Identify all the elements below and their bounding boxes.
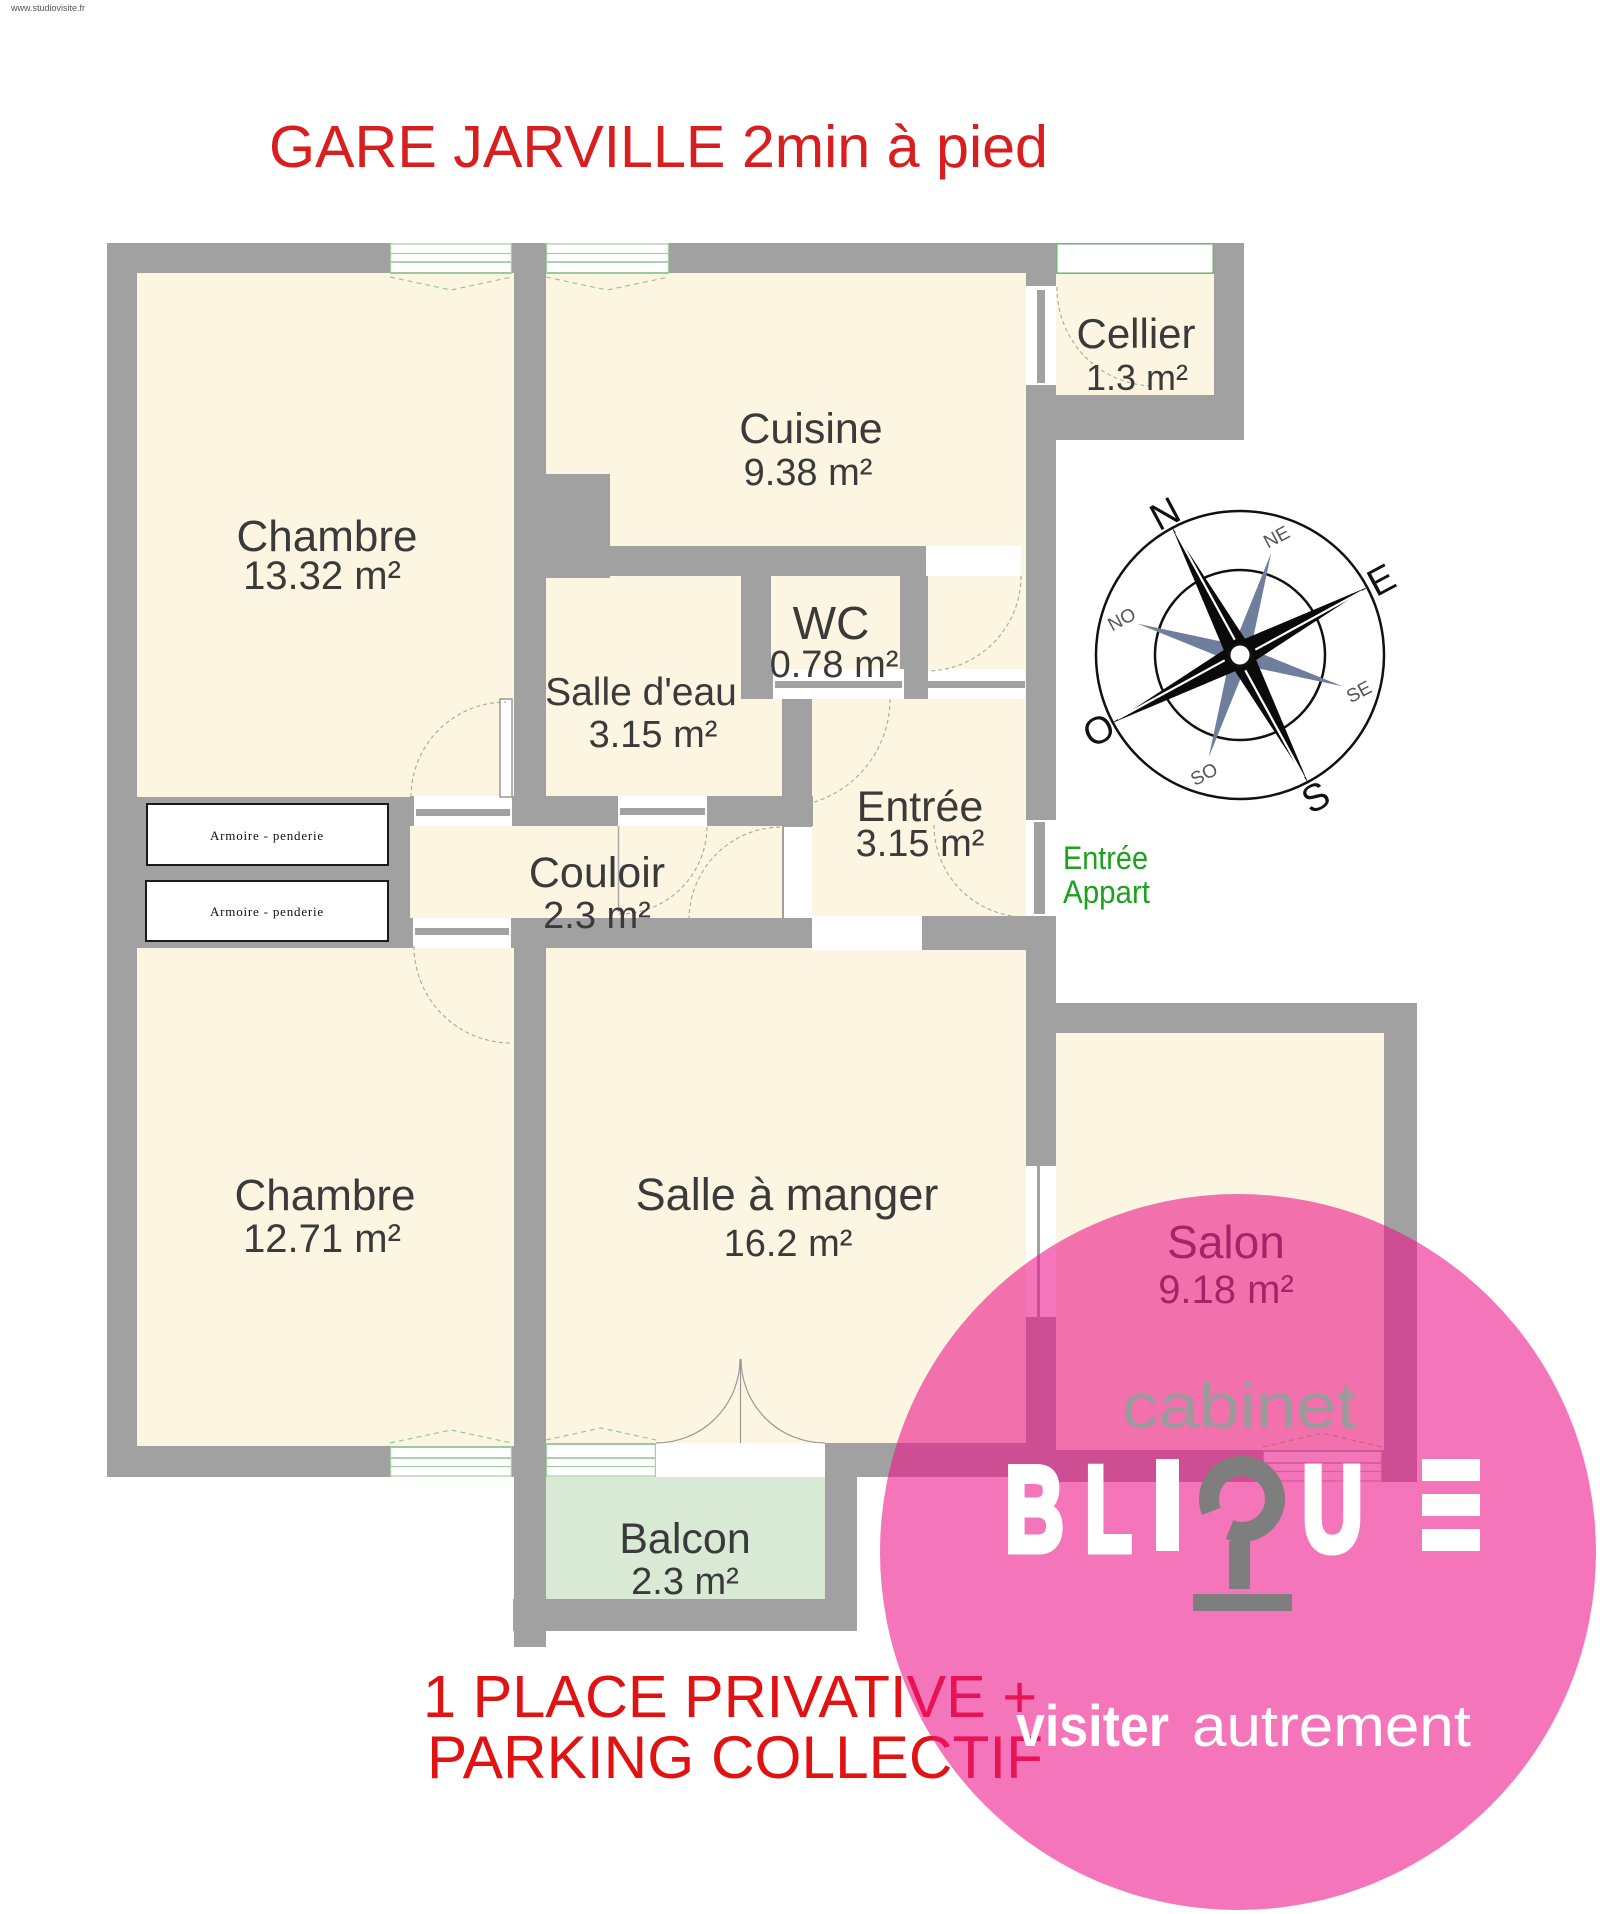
svg-text:autrement: autrement [1192, 1694, 1471, 1759]
svg-text:NO: NO [1105, 604, 1140, 636]
svg-text:GARE JARVILLE 2min à pied: GARE JARVILLE 2min à pied [269, 114, 1048, 180]
svg-text:U: U [1302, 1441, 1363, 1577]
svg-text:Appart: Appart [1063, 874, 1150, 910]
svg-text:SE: SE [1343, 677, 1375, 707]
svg-text:2.3 m²: 2.3 m² [631, 1561, 739, 1603]
svg-text:Balcon: Balcon [619, 1515, 750, 1563]
svg-text:B: B [1005, 1441, 1064, 1577]
svg-text:Entrée: Entrée [1063, 840, 1148, 876]
svg-text:E: E [1361, 556, 1403, 605]
svg-text:Armoire - penderie: Armoire - penderie [210, 828, 324, 843]
svg-text:Armoire - penderie: Armoire - penderie [210, 904, 324, 919]
svg-text:O: O [1076, 706, 1122, 757]
svg-text:WC: WC [793, 597, 870, 649]
svg-text:www.studiovisite.fr: www.studiovisite.fr [10, 3, 85, 13]
svg-text:3.15 m²: 3.15 m² [856, 823, 985, 865]
svg-text:3.15 m²: 3.15 m² [589, 714, 718, 756]
svg-text:S: S [1295, 774, 1337, 823]
svg-text:13.32 m²: 13.32 m² [243, 554, 401, 598]
svg-text:12.71 m²: 12.71 m² [243, 1217, 401, 1261]
svg-text:SO: SO [1187, 759, 1221, 790]
svg-text:Cellier: Cellier [1076, 310, 1195, 357]
svg-text:Salle à manger: Salle à manger [636, 1169, 939, 1220]
svg-text:NE: NE [1260, 522, 1293, 553]
svg-text:Chambre: Chambre [235, 1171, 416, 1220]
svg-text:Salle d'eau: Salle d'eau [545, 671, 737, 714]
svg-text:cabinet: cabinet [1122, 1370, 1357, 1442]
svg-text:9.38 m²: 9.38 m² [744, 452, 873, 494]
svg-text:L: L [1085, 1441, 1132, 1577]
svg-text:Couloir: Couloir [529, 849, 665, 897]
svg-text:visiter: visiter [1016, 1694, 1169, 1759]
svg-text:N: N [1143, 490, 1187, 540]
svg-text:1.3 m²: 1.3 m² [1086, 357, 1188, 398]
svg-text:2.3 m²: 2.3 m² [543, 895, 651, 937]
svg-text:Cuisine: Cuisine [739, 405, 882, 453]
svg-text:16.2 m²: 16.2 m² [724, 1223, 853, 1265]
svg-text:0.78 m²: 0.78 m² [770, 644, 899, 686]
